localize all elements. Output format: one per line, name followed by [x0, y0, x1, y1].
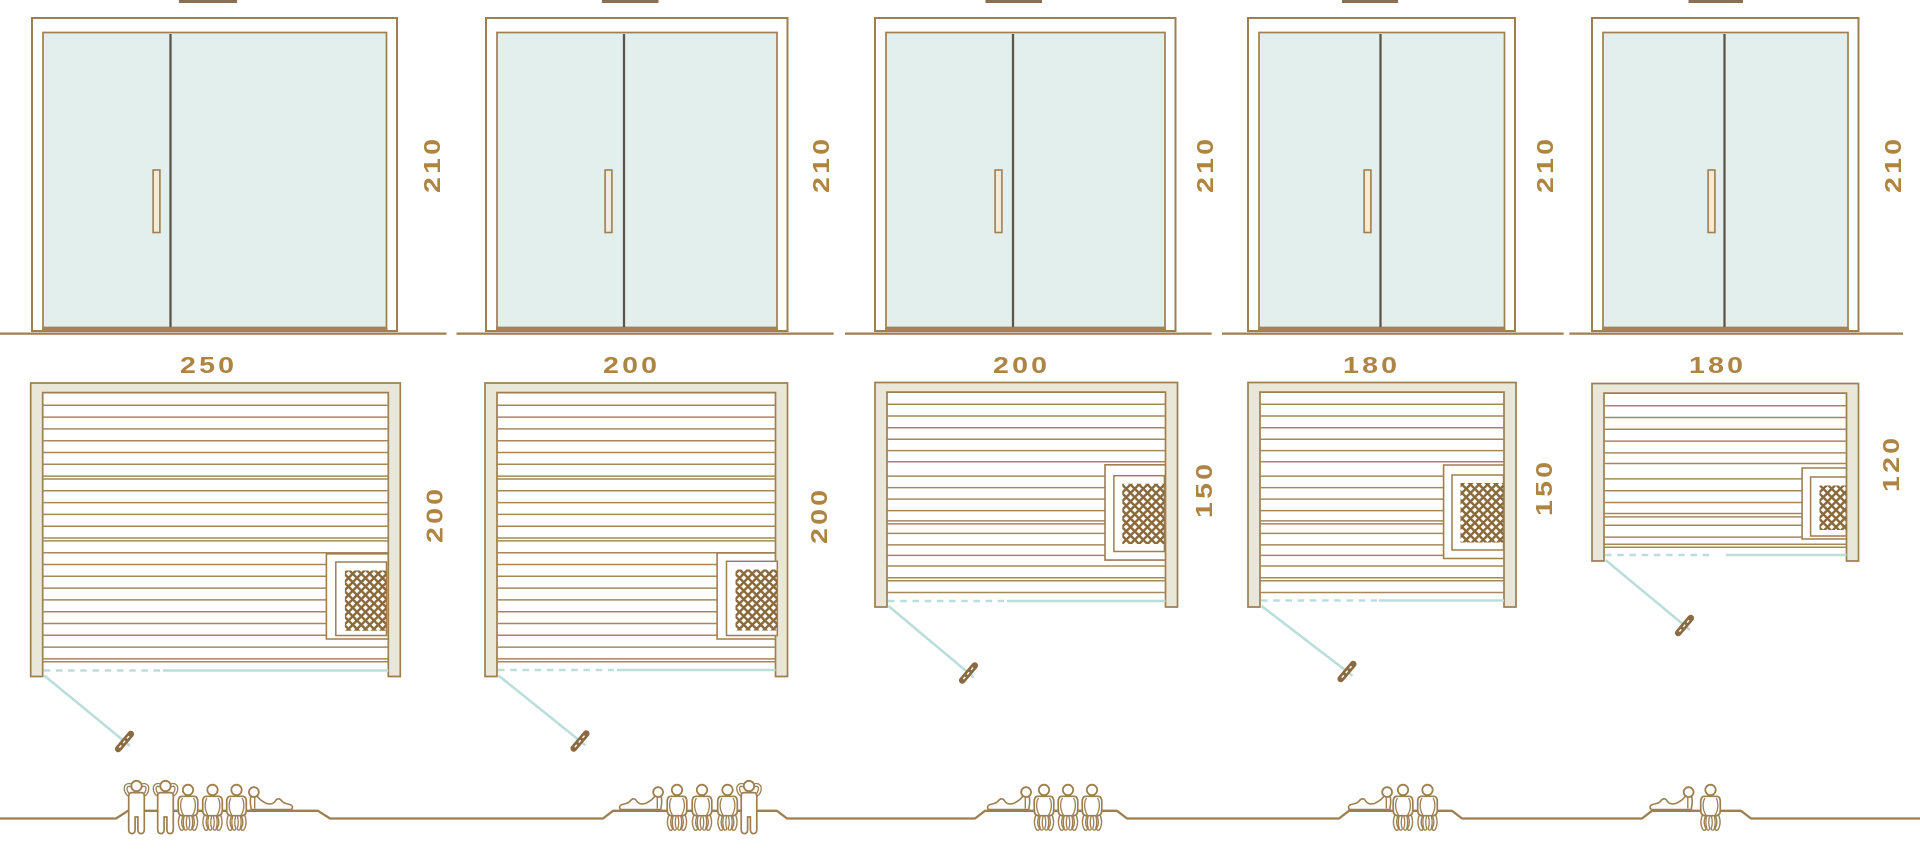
svg-text:150: 150	[1193, 461, 1218, 518]
svg-text:210: 210	[1534, 136, 1559, 193]
svg-text:210: 210	[1882, 136, 1907, 193]
svg-text:200: 200	[603, 353, 660, 378]
svg-text:150: 150	[1533, 459, 1558, 516]
svg-text:210: 210	[810, 136, 835, 193]
svg-text:120: 120	[1880, 435, 1905, 492]
svg-text:180: 180	[1343, 353, 1400, 378]
svg-text:210: 210	[421, 136, 446, 193]
svg-text:180: 180	[1689, 353, 1746, 378]
svg-text:250: 250	[180, 353, 237, 378]
svg-text:210: 210	[1194, 136, 1219, 193]
svg-text:200: 200	[993, 353, 1050, 378]
svg-text:200: 200	[423, 486, 448, 543]
svg-text:200: 200	[808, 487, 833, 544]
